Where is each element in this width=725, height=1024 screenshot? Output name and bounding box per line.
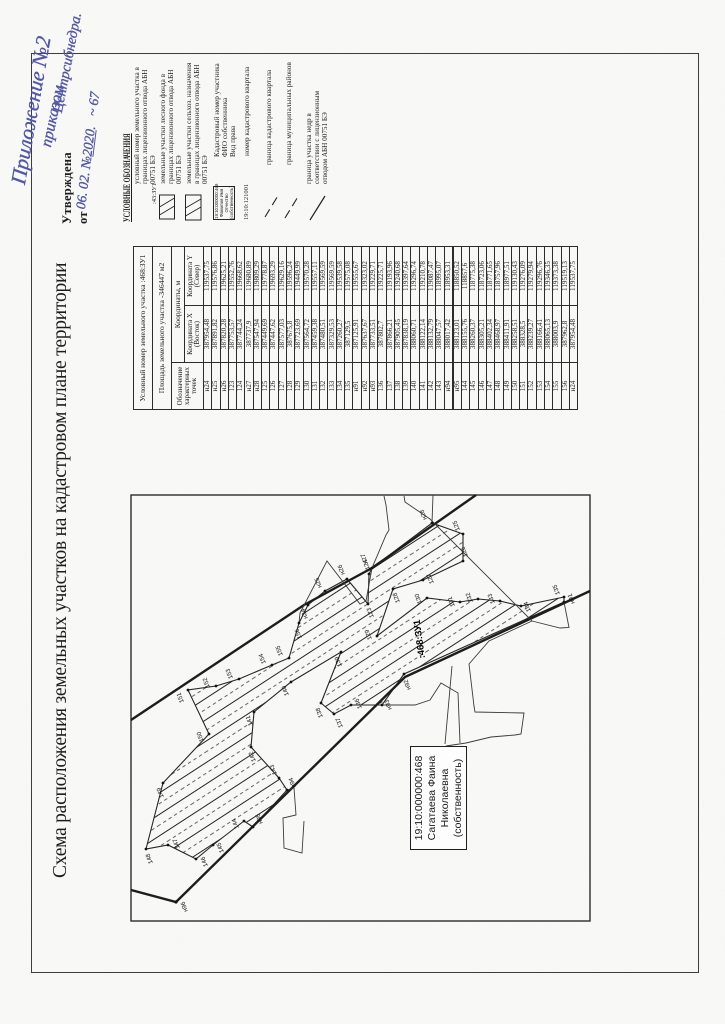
svg-text:н28: н28: [418, 508, 428, 521]
svg-text:135: 135: [551, 583, 561, 596]
svg-text:125: 125: [451, 519, 461, 532]
svg-text:154: 154: [257, 652, 267, 665]
svg-text:150: 150: [195, 730, 205, 743]
svg-text:н25: н25: [313, 576, 323, 589]
svg-text:138: 138: [314, 706, 324, 719]
svg-text:137: 137: [334, 716, 344, 729]
svg-text:н91: н91: [566, 592, 576, 605]
svg-text:н26: н26: [336, 563, 346, 576]
svg-text:146: 146: [199, 855, 209, 868]
svg-text:н94: н94: [287, 776, 297, 789]
svg-text:155: 155: [274, 644, 284, 657]
svg-text:130: 130: [413, 592, 423, 605]
svg-text:151: 151: [175, 691, 185, 704]
svg-text:153: 153: [224, 667, 234, 680]
svg-text:152: 152: [201, 676, 211, 689]
svg-text:148: 148: [144, 852, 154, 865]
svg-text:145: 145: [215, 841, 225, 854]
svg-text:н27: н27: [359, 552, 369, 565]
svg-text:128: 128: [391, 591, 401, 604]
svg-text:н92: н92: [402, 678, 412, 691]
svg-text:н96: н96: [179, 900, 189, 913]
